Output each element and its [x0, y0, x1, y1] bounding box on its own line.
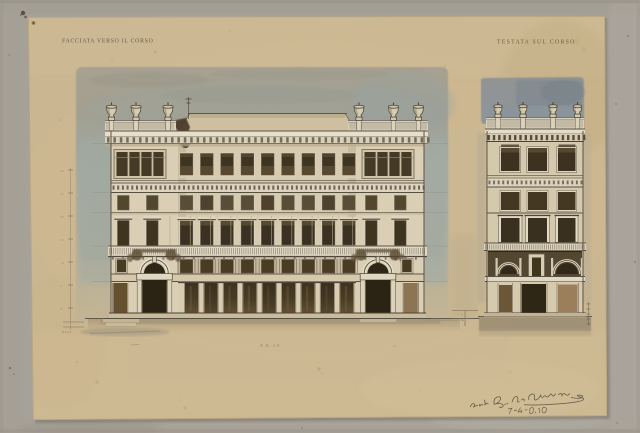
svg-text:FACCIATA VERSO IL CORSO: FACCIATA VERSO IL CORSO	[62, 39, 154, 45]
svg-text:TESTATA SUL CORSO: TESTATA SUL CORSO	[497, 40, 576, 46]
svg-text:N.N. 4.0: N.N. 4.0	[260, 343, 280, 348]
svg-text:0 1 2 3: 0 1 2 3	[62, 330, 72, 334]
svg-text:20: 20	[61, 215, 65, 219]
svg-text:10: 10	[61, 261, 65, 265]
svg-text:15: 15	[61, 238, 65, 242]
svg-text:25: 25	[61, 192, 65, 196]
svg-text:30: 30	[61, 169, 65, 173]
svg-text:m: m	[393, 344, 396, 348]
